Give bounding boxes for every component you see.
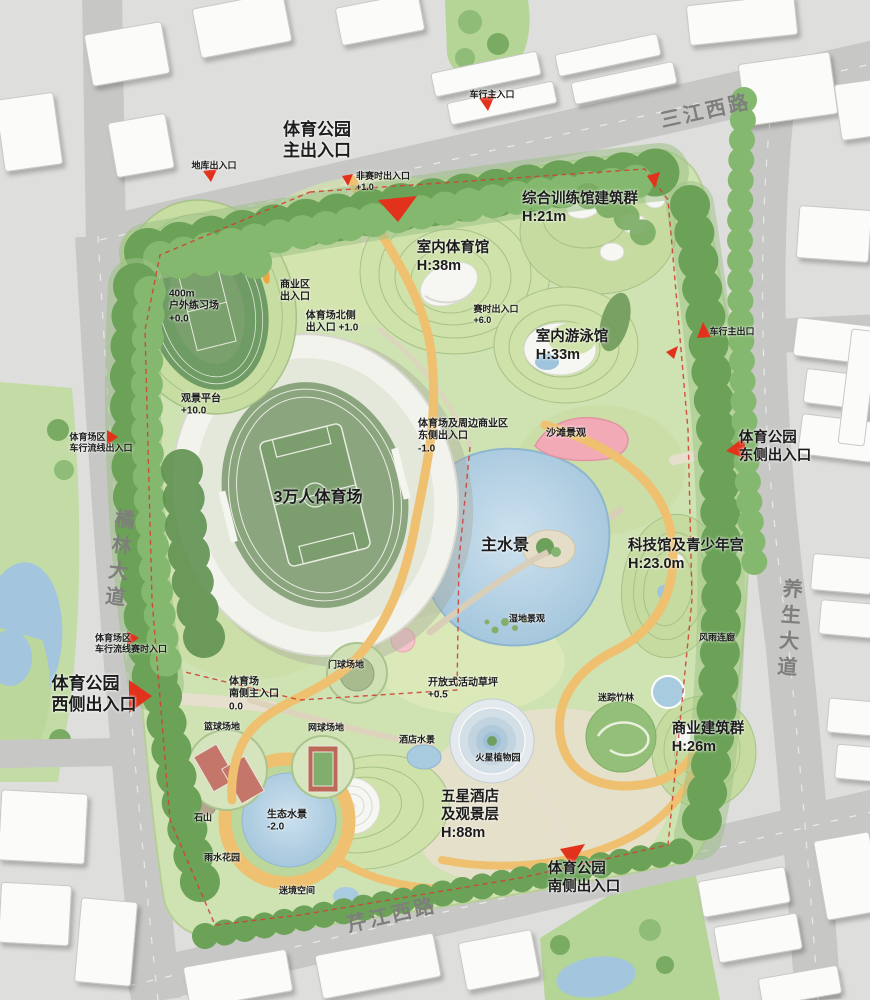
label-activity-lawn: 开放式活动草坪 +0.5 xyxy=(428,678,498,703)
label-commercial-entrance: 商业区 出入口 xyxy=(280,280,310,305)
masterplan-art xyxy=(0,0,870,1000)
label-practice-field: 400m 户外练习场 +0.0 xyxy=(169,288,219,325)
label-stone-hill: 石山 xyxy=(194,812,212,823)
label-west-entrance: 体育公园 西侧出入口 xyxy=(52,673,137,715)
label-training-complex: 综合训练馆建筑群 H:21m xyxy=(522,191,638,227)
label-stadium-north-entrance: 体育场北侧 出入口 +1.0 xyxy=(306,311,359,336)
label-rain-garden: 雨水花园 xyxy=(204,852,240,863)
label-vehicle-main-exit: 车行主出口 xyxy=(709,326,754,337)
label-hotel: 五星酒店 及观景层 H:88m xyxy=(441,789,499,843)
label-vehicle-main-entrance: 车行主入口 xyxy=(469,89,514,100)
label-wetland: 湿地景观 xyxy=(509,613,545,624)
label-basketball-court: 篮球场地 xyxy=(204,721,240,732)
label-stadium-commercial-east-entrance: 体育场及周边商业区 东侧出入口 -1.0 xyxy=(418,418,508,455)
label-hotel-water: 酒店水景 xyxy=(399,734,435,745)
label-event-entrance: 赛时出入口 +6.0 xyxy=(473,304,518,326)
label-science-youth-center: 科技馆及青少年宫 H:23.0m xyxy=(628,538,744,574)
label-east-entrance: 体育公园 东侧出入口 xyxy=(739,430,812,466)
label-viewing-platform: 观景平台 +10.0 xyxy=(181,394,221,419)
label-mars-garden: 火星植物园 xyxy=(475,752,520,763)
label-commercial-complex: 商业建筑群 H:26m xyxy=(672,721,745,757)
label-indoor-pool: 室内游泳馆 H:33m xyxy=(536,329,609,365)
hotel-pond xyxy=(407,745,441,769)
bamboo-maze-feature xyxy=(586,702,656,772)
label-rain-corridor: 风雨连廊 xyxy=(699,632,735,643)
label-indoor-gym: 室内体育馆 H:38m xyxy=(417,240,490,276)
masterplan-canvas: 体育公园 主出入口 三江西路 车行主入口 地库出入口 非赛时出入口 +1.0 综… xyxy=(0,0,870,1000)
label-stadium-south-entrance: 体育场 南侧主入口 0.0 xyxy=(229,676,279,713)
label-stadium: 3万人体育场 xyxy=(274,488,363,508)
label-bamboo-maze: 迷踪竹林 xyxy=(598,692,634,703)
label-non-event-entrance: 非赛时出入口 +1.0 xyxy=(356,171,410,193)
label-mist-space: 迷境空间 xyxy=(279,885,315,896)
label-south-entrance: 体育公园 南侧出入口 xyxy=(548,861,621,897)
mars-garden-feature xyxy=(450,699,534,783)
label-garage-entrance: 地库出入口 xyxy=(191,160,236,171)
label-beach: 沙滩景观 xyxy=(546,428,586,440)
label-stadium-vehicle-entrance-south: 体育场区 车行流线赛时入口 xyxy=(95,633,167,655)
tennis-court-feature xyxy=(292,736,354,798)
label-main-water: 主水景 xyxy=(481,536,529,556)
label-eco-water: 生态水景 -2.0 xyxy=(267,810,307,835)
label-main-entrance: 体育公园 主出入口 xyxy=(283,119,351,161)
label-stadium-vehicle-entrance-north: 体育场区 车行流线出入口 xyxy=(69,432,132,454)
label-tennis-court: 网球场地 xyxy=(308,722,344,733)
label-gateball-court: 门球场地 xyxy=(328,659,364,670)
